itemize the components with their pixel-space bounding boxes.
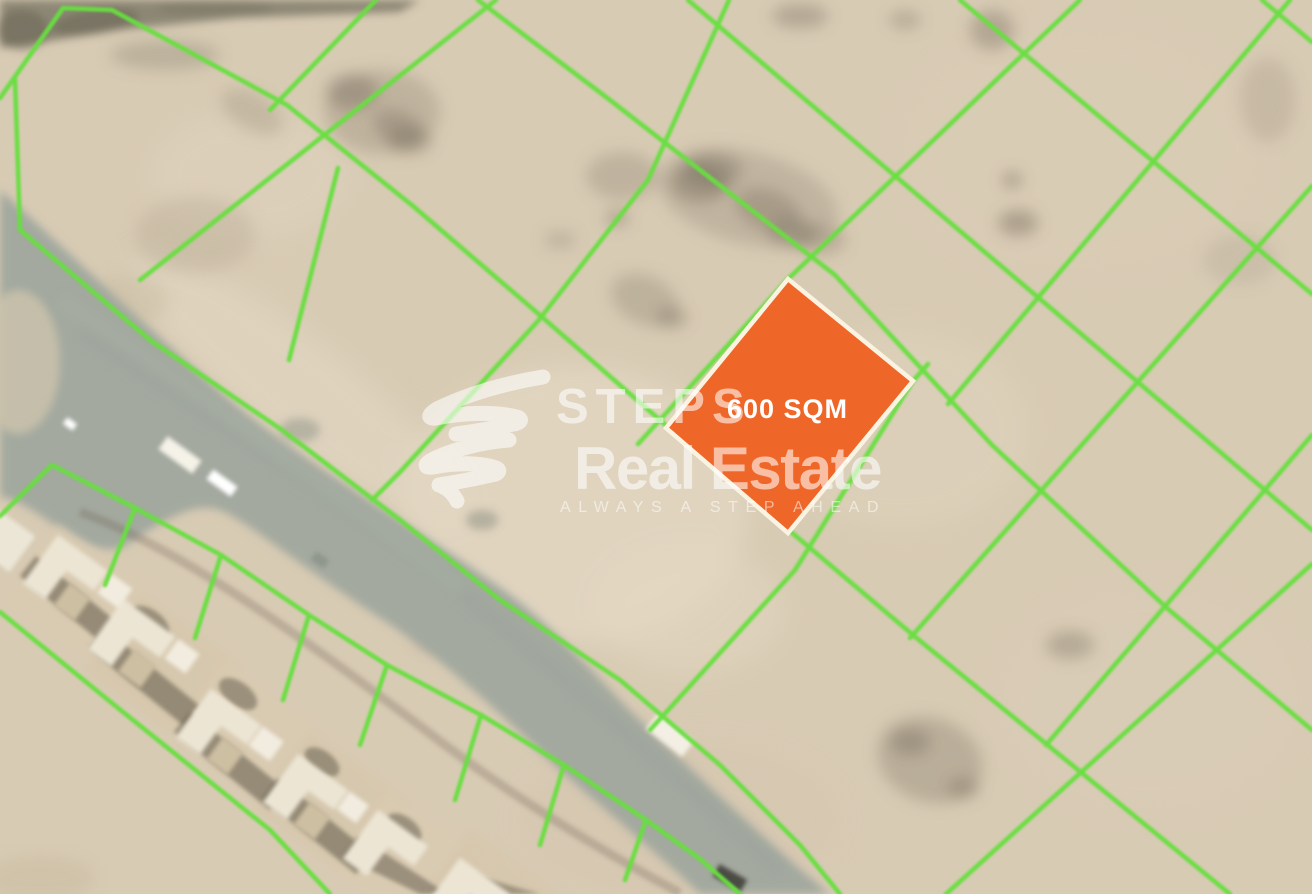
- svg-text:STEPS: STEPS: [556, 380, 752, 434]
- svg-text:Real Estate: Real Estate: [574, 435, 881, 502]
- svg-text:600 SQM: 600 SQM: [727, 394, 848, 424]
- svg-text:ALWAYS A STEP AHEAD: ALWAYS A STEP AHEAD: [560, 499, 886, 516]
